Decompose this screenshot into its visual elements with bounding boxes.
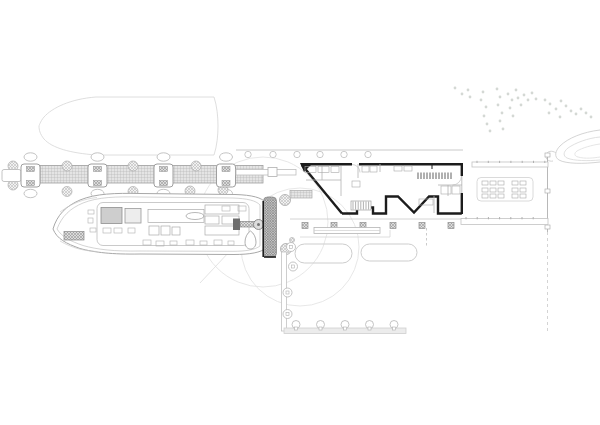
- site-plan-canvas[interactable]: [0, 0, 600, 425]
- east-jetty-upper-band: [472, 162, 548, 167]
- pier-stub: [2, 170, 21, 182]
- gangway-landing: [268, 168, 277, 177]
- east-jetty-lower-band: [461, 219, 548, 225]
- yacht-liferaft: [64, 232, 84, 241]
- crane-arm: [240, 222, 255, 228]
- building-furniture: [305, 166, 460, 205]
- shore-curve-outer: [556, 130, 600, 163]
- building-stair-treads: [353, 202, 369, 210]
- yacht-machinery-block: [125, 209, 141, 224]
- building-door-arc-east: [453, 176, 462, 185]
- radius-guide-line: [200, 251, 230, 283]
- crane-hub-pin: [257, 223, 260, 226]
- gangway: [236, 170, 296, 176]
- site-plan-document: [0, 0, 600, 425]
- tree-dots-field: [454, 87, 593, 133]
- yacht-engine-block: [101, 208, 122, 224]
- stern-lift-platform: [264, 197, 277, 257]
- stern-tree-small: [290, 238, 295, 243]
- crane-base: [233, 219, 240, 231]
- building-bar-counter-ticks: [418, 173, 451, 180]
- terrace-canopy-east: [361, 244, 417, 261]
- plan-linework: [2, 87, 600, 334]
- shore-curve-inner: [575, 144, 600, 158]
- east-terrace-furniture: [482, 181, 526, 198]
- building-door-arc-west: [352, 165, 360, 173]
- stern-connector-deck: [290, 191, 312, 199]
- berth-hull-outline: [39, 97, 218, 155]
